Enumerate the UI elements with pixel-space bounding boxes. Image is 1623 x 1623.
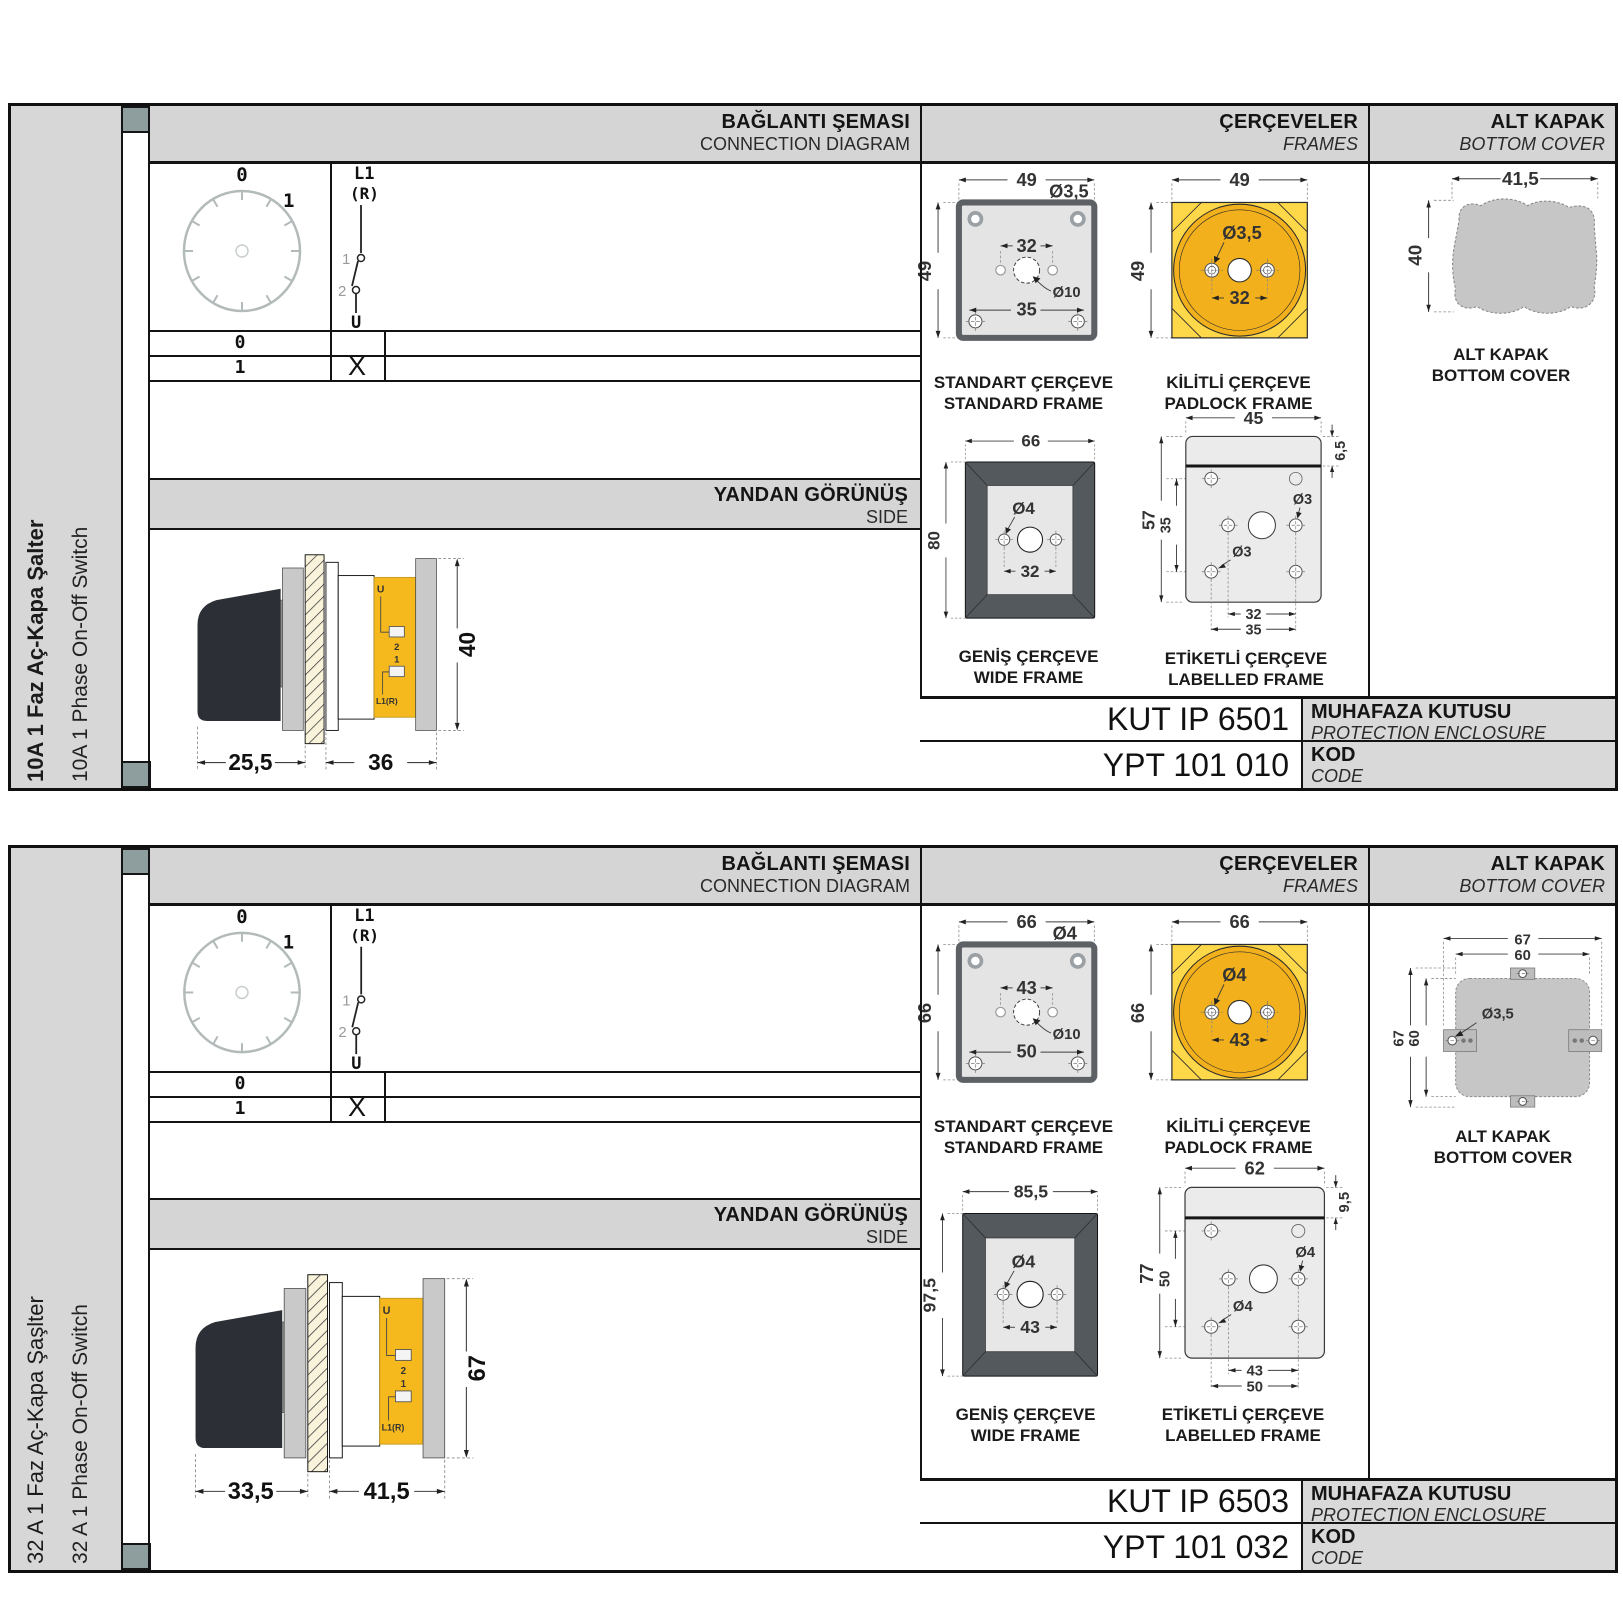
dim-height-outer: 67 <box>1392 1030 1408 1046</box>
dim-frame-height: 97,5 <box>920 1278 940 1313</box>
bottom-cover-caption-en: BOTTOM COVER <box>1401 365 1601 386</box>
wide-frame-drawing: 66 80 Ø4 32 <box>933 428 1123 640</box>
enclosure-label-en: PROTECTION ENCLOSURE <box>1311 723 1615 744</box>
dim-hole-left: Ø4 <box>1233 1299 1254 1315</box>
dim-center-hole: Ø10 <box>1053 1027 1081 1043</box>
standard-frame-drawing: 49 Ø3,5 49 32 Ø10 35 <box>924 166 1124 370</box>
product-section-10a: 10A 1 Faz Aç-Kapa Şalter 10A 1 Phase On-… <box>8 103 1618 791</box>
dim-width-inner: 60 <box>1514 948 1530 964</box>
sidebar-divider <box>121 106 123 788</box>
switch-dial-diagram: 0 1 <box>150 161 330 330</box>
labelled-frame-drawing: 45 6,5 57 35 Ø3 Ø3 <box>1139 406 1351 636</box>
dial-position-0: 0 <box>236 906 247 928</box>
header-cover-tr: ALT KAPAK <box>1370 853 1605 876</box>
dim-mid-spacing: 32 <box>1016 236 1036 256</box>
dim-tab-hole: Ø3,5 <box>1482 1006 1514 1022</box>
dim-frame-width: 66 <box>1021 432 1040 451</box>
front-plate <box>284 1289 306 1458</box>
contact-1-label: 1 <box>342 251 350 268</box>
side-header-en: SIDE <box>150 1227 908 1249</box>
product-code-value: YPT 101 032 <box>920 1524 1303 1570</box>
header-bottom-cover: ALT KAPAK BOTTOM COVER <box>1370 848 1615 903</box>
code-label-en: CODE <box>1311 766 1615 787</box>
dim-hole: Ø4 <box>1222 965 1247 985</box>
dial-center <box>236 245 248 257</box>
product-title-tr: 32 A 1 Faz Aç-Kapa Şaşlter <box>23 1296 49 1564</box>
strip-square-top <box>121 848 151 875</box>
dim-cover-height: 40 <box>1405 245 1426 266</box>
dim-height: 40 <box>454 632 480 657</box>
terminal-l1-label: L1 <box>354 164 374 184</box>
enclosure-code-value: KUT IP 6503 <box>920 1481 1303 1522</box>
header-frames-tr: ÇERÇEVELER <box>922 111 1358 134</box>
dial-center <box>236 987 248 999</box>
code-label-en: CODE <box>1311 1548 1615 1569</box>
enclosure-code-label: MUHAFAZA KUTUSU PROTECTION ENCLOSURE <box>1303 699 1615 740</box>
dim-hole-right: Ø3 <box>1293 492 1312 508</box>
dim-corner-hole: Ø3,5 <box>1049 181 1089 201</box>
switch-dial-diagram: 0 1 <box>150 903 330 1071</box>
padlock-frame-caption-tr: KİLİTLİ ÇERÇEVE <box>1131 1116 1346 1137</box>
dim-bottom-spacing: 35 <box>1016 299 1036 319</box>
rear-plate <box>416 559 437 731</box>
header-cover-en: BOTTOM COVER <box>1370 134 1605 156</box>
header-frames-en: FRAMES <box>922 876 1358 898</box>
header-bottom-border <box>150 903 1615 906</box>
dim-frame-width: 66 <box>1016 912 1036 932</box>
side-header-tr: YANDAN GÖRÜNÜŞ <box>150 484 908 507</box>
contact-2-label: 2 <box>338 1025 346 1041</box>
enclosure-label-tr: MUHAFAZA KUTUSU <box>1311 701 1615 723</box>
product-code-row: YPT 101 032 KOD CODE <box>920 1524 1615 1570</box>
switch-handle <box>198 589 281 721</box>
rear-plate <box>423 1279 445 1458</box>
padlock-center-hole <box>1228 1000 1251 1023</box>
switch-body <box>338 576 374 720</box>
product-section-32a: 32 A 1 Faz Aç-Kapa Şaşlter 32 A 1 Phase … <box>8 845 1618 1573</box>
dim-frame-width: 62 <box>1245 1157 1265 1178</box>
wide-frame-caption: GENİŞ ÇERÇEVE WIDE FRAME <box>926 646 1131 689</box>
terminal-u: U <box>383 1305 391 1317</box>
header-frames: ÇERÇEVELER FRAMES <box>922 848 1368 903</box>
header-connection-diagram: BAĞLANTI ŞEMASI CONNECTION DIAGRAM <box>150 848 920 903</box>
terminal-l1r: L1(R) <box>376 696 398 706</box>
mounting-panel-hatched <box>308 1275 328 1472</box>
dim-spacing: 43 <box>1020 1317 1040 1337</box>
dim-frame-width: 49 <box>1229 170 1249 190</box>
flange <box>326 562 338 730</box>
product-title-en: 32 A 1 Phase On-Off Switch <box>69 1304 93 1564</box>
dim-height: 67 <box>465 1355 491 1381</box>
header-cover-en: BOTTOM COVER <box>1370 876 1605 898</box>
bottom-cover-caption-en: BOTTOM COVER <box>1403 1147 1603 1168</box>
dim-hole: Ø4 <box>1012 499 1035 518</box>
dial-cell-divider <box>330 161 332 380</box>
switch-handle <box>196 1310 283 1448</box>
wide-frame-caption-tr: GENİŞ ÇERÇEVE <box>926 646 1131 667</box>
header-cover-tr: ALT KAPAK <box>1370 111 1605 134</box>
enclosure-label-tr: MUHAFAZA KUTUSU <box>1311 1483 1615 1505</box>
dim-center-hole: Ø10 <box>1053 285 1081 301</box>
contact-2-label: 2 <box>338 283 346 300</box>
wide-frame-caption-tr: GENİŞ ÇERÇEVE <box>923 1404 1128 1425</box>
code-label-tr: KOD <box>1311 1526 1615 1548</box>
product-title-tr: 10A 1 Faz Aç-Kapa Şalter <box>23 520 49 782</box>
switch-schematic: L1 (R) 1 2 U <box>330 903 460 1071</box>
dim-frame-height: 49 <box>1128 261 1148 281</box>
header-frames-en: FRAMES <box>922 134 1358 156</box>
dim-depth-body: 41,5 <box>364 1479 410 1505</box>
frames-panel-divider <box>920 848 922 1478</box>
side-view-drawing: U 2 1 L1(R) 67 33,5 41,5 <box>166 1253 491 1519</box>
dim-cover-width: 41,5 <box>1502 169 1539 190</box>
labelled-frame-caption: ETİKETLİ ÇERÇEVE LABELLED FRAME <box>1136 648 1356 691</box>
switch-schematic: L1 (R) 1 2 U <box>330 161 460 330</box>
table-line-2 <box>150 355 920 357</box>
wide-frame-drawing: 85,5 97,5 Ø4 43 <box>929 1178 1127 1399</box>
dim-mid-spacing: 43 <box>1016 978 1036 998</box>
table-row1-position: 1 <box>150 355 330 380</box>
dim-frame-width: 45 <box>1244 408 1264 428</box>
standard-frame-drawing: 66 Ø4 66 43 Ø10 50 <box>924 908 1124 1112</box>
dim-depth-body: 36 <box>368 749 393 775</box>
contact-2 <box>353 287 360 294</box>
terminal-r-label: (R) <box>350 926 379 945</box>
terminal-block: U 2 1 L1(R) <box>380 1298 423 1444</box>
table-line-3 <box>150 380 920 382</box>
dial-position-0: 0 <box>236 164 247 186</box>
table-row1-position: 1 <box>150 1096 330 1121</box>
table-row0-position: 0 <box>150 1071 330 1096</box>
dim-hole-row-spacing: 35 <box>1159 517 1175 533</box>
section-sidebar: 10A 1 Faz Aç-Kapa Şalter 10A 1 Phase On-… <box>11 106 121 788</box>
content-left-border <box>148 106 150 788</box>
standard-frame-caption: STANDART ÇERÇEVE STANDARD FRAME <box>916 372 1131 415</box>
product-code-label: KOD CODE <box>1303 1524 1615 1570</box>
dim-label-band: 9,5 <box>1337 1192 1353 1213</box>
terminal-u: U <box>377 585 385 596</box>
header-connection-tr: BAĞLANTI ŞEMASI <box>150 111 910 134</box>
terminal-1: 1 <box>394 654 399 665</box>
table-line-1 <box>150 330 920 332</box>
header-connection-en: CONNECTION DIAGRAM <box>150 134 910 156</box>
dim-bottom-spacing: 50 <box>1016 1041 1036 1061</box>
dim-frame-height: 80 <box>924 531 943 550</box>
terminal-u-label: U <box>351 1053 361 1073</box>
dim-bottom-outer: 35 <box>1245 622 1261 638</box>
dim-frame-height: 77 <box>1136 1263 1157 1283</box>
enclosure-label-en: PROTECTION ENCLOSURE <box>1311 1505 1615 1526</box>
product-code-value: YPT 101 010 <box>920 742 1303 788</box>
dim-spacing: 32 <box>1021 562 1040 581</box>
padlock-frame-caption: KİLİTLİ ÇERÇEVE PADLOCK FRAME <box>1131 1116 1346 1159</box>
side-view-drawing: U 2 1 L1(R) 40 25,5 36 <box>169 534 481 789</box>
side-header-en: SIDE <box>150 507 908 529</box>
wide-frame-caption-en: WIDE FRAME <box>926 667 1131 688</box>
dim-frame-height: 66 <box>915 1003 935 1023</box>
bottom-cover-drawing: 41,5 40 <box>1389 166 1614 339</box>
enclosure-code-row: KUT IP 6501 MUHAFAZA KUTUSU PROTECTION E… <box>920 696 1615 742</box>
flange <box>329 1283 342 1458</box>
padlock-frame-drawing: 66 66 Ø4 43 <box>1137 908 1337 1112</box>
side-header-tr: YANDAN GÖRÜNÜŞ <box>150 1204 908 1227</box>
content-left-border <box>148 848 150 1570</box>
side-view-header: YANDAN GÖRÜNÜŞ SIDE <box>150 478 920 530</box>
header-connection-diagram: BAĞLANTI ŞEMASI CONNECTION DIAGRAM <box>150 106 920 161</box>
sidebar-divider <box>121 848 123 1570</box>
labelled-frame-caption-tr: ETİKETLİ ÇERÇEVE <box>1133 1404 1353 1425</box>
enclosure-code-label: MUHAFAZA KUTUSU PROTECTION ENCLOSURE <box>1303 1481 1615 1522</box>
dim-width-outer: 67 <box>1514 933 1530 949</box>
dim-frame-height: 57 <box>1139 510 1159 530</box>
dim-frame-width: 49 <box>1016 170 1036 190</box>
code-label-tr: KOD <box>1311 744 1615 766</box>
bottom-cover-caption: ALT KAPAK BOTTOM COVER <box>1403 1126 1603 1169</box>
strip-square-bottom <box>121 1543 151 1570</box>
mounting-panel-hatched <box>305 555 324 744</box>
labelled-frame-caption-tr: ETİKETLİ ÇERÇEVE <box>1136 648 1356 669</box>
standard-frame-caption-tr: STANDART ÇERÇEVE <box>916 1116 1131 1137</box>
section-sidebar: 32 A 1 Faz Aç-Kapa Şaşlter 32 A 1 Phase … <box>11 848 121 1570</box>
table-line-2 <box>150 1096 920 1098</box>
header-bottom-cover: ALT KAPAK BOTTOM COVER <box>1370 106 1615 161</box>
contact-1 <box>358 996 365 1003</box>
dim-depth-handle: 33,5 <box>228 1479 274 1505</box>
switch-blade <box>352 1002 358 1027</box>
standard-frame-caption-en: STANDARD FRAME <box>916 393 1131 414</box>
product-code-label: KOD CODE <box>1303 742 1615 788</box>
terminal-l1-label: L1 <box>354 905 374 925</box>
terminal-1: 1 <box>401 1379 407 1390</box>
dim-hole-right: Ø4 <box>1295 1245 1316 1261</box>
contact-1 <box>358 255 365 262</box>
header-connection-tr: BAĞLANTI ŞEMASI <box>150 853 910 876</box>
wide-frame-caption-en: WIDE FRAME <box>923 1425 1128 1446</box>
switch-blade <box>352 261 358 286</box>
terminal-r-label: (R) <box>350 184 379 203</box>
product-code-row: YPT 101 010 KOD CODE <box>920 742 1615 788</box>
terminal-2: 2 <box>401 1366 407 1377</box>
product-title-en: 10A 1 Phase On-Off Switch <box>69 527 93 782</box>
dim-hole-left: Ø3 <box>1232 545 1251 561</box>
labelled-frame-caption-en: LABELLED FRAME <box>1133 1425 1353 1446</box>
side-view-header: YANDAN GÖRÜNÜŞ SIDE <box>150 1198 920 1250</box>
dim-spacing: 43 <box>1229 1030 1249 1050</box>
cover-panel-divider <box>1368 106 1370 696</box>
bottom-cover-caption: ALT KAPAK BOTTOM COVER <box>1401 344 1601 387</box>
dim-depth-handle: 25,5 <box>228 749 272 775</box>
labelled-frame-caption-en: LABELLED FRAME <box>1136 669 1356 690</box>
standard-frame-caption-en: STANDARD FRAME <box>916 1137 1131 1158</box>
wide-frame-caption: GENİŞ ÇERÇEVE WIDE FRAME <box>923 1404 1128 1447</box>
header-frames: ÇERÇEVELER FRAMES <box>922 106 1368 161</box>
dim-label-band: 6,5 <box>1333 441 1349 461</box>
padlock-center-hole <box>1228 258 1251 281</box>
frames-panel-divider <box>920 106 922 696</box>
standard-frame-caption: STANDART ÇERÇEVE STANDARD FRAME <box>916 1116 1131 1159</box>
labelled-frame-caption: ETİKETLİ ÇERÇEVE LABELLED FRAME <box>1133 1404 1353 1447</box>
dim-bottom-inner: 43 <box>1246 1364 1262 1380</box>
dim-frame-width: 85,5 <box>1014 1182 1049 1202</box>
enclosure-code-row: KUT IP 6503 MUHAFAZA KUTUSU PROTECTION E… <box>920 1478 1615 1524</box>
switch-body <box>342 1296 379 1446</box>
table-line-3 <box>150 1121 920 1123</box>
bottom-cover-caption-tr: ALT KAPAK <box>1403 1126 1603 1147</box>
terminal-block: U 2 1 L1(R) <box>374 577 416 717</box>
dim-bottom-inner: 32 <box>1245 607 1261 623</box>
dim-frame-width: 66 <box>1229 912 1249 932</box>
dim-spacing: 32 <box>1229 288 1249 308</box>
dim-corner-hole: Ø4 <box>1053 923 1078 943</box>
padlock-frame-caption-tr: KİLİTLİ ÇERÇEVE <box>1131 372 1346 393</box>
bottom-cover-shape <box>1453 199 1597 313</box>
dim-frame-height: 66 <box>1128 1003 1148 1023</box>
padlock-frame-drawing: 49 49 Ø3,5 32 <box>1137 166 1337 370</box>
contact-1-label: 1 <box>342 993 350 1009</box>
dim-hole: Ø3,5 <box>1222 223 1262 243</box>
dim-frame-height: 49 <box>915 261 935 281</box>
labelled-frame-drawing: 62 9,5 77 50 Ø4 Ø4 <box>1137 1156 1355 1393</box>
enclosure-code-value: KUT IP 6501 <box>920 699 1303 740</box>
header-frames-tr: ÇERÇEVELER <box>922 853 1358 876</box>
strip-square-top <box>121 106 151 133</box>
bottom-cover-drawing: 67 60 67 60 Ø3,5 <box>1386 928 1621 1121</box>
front-plate <box>283 568 304 730</box>
bottom-cover-caption-tr: ALT KAPAK <box>1401 344 1601 365</box>
contact-2 <box>353 1028 360 1035</box>
table-row0-position: 0 <box>150 330 330 355</box>
dim-height-inner: 60 <box>1407 1030 1423 1046</box>
dim-hole: Ø4 <box>1012 1251 1036 1271</box>
strip-square-bottom <box>121 761 151 788</box>
dim-hole-row-spacing: 50 <box>1157 1271 1173 1287</box>
dial-cell-divider <box>330 903 332 1121</box>
header-connection-en: CONNECTION DIAGRAM <box>150 876 910 898</box>
header-bottom-border <box>150 161 1615 164</box>
table-line-1 <box>150 1071 920 1073</box>
standard-frame-caption-tr: STANDART ÇERÇEVE <box>916 372 1131 393</box>
terminal-2: 2 <box>394 642 399 653</box>
terminal-l1r: L1(R) <box>382 1422 405 1432</box>
cover-panel-divider <box>1368 848 1370 1478</box>
dim-bottom-outer: 50 <box>1246 1379 1262 1395</box>
